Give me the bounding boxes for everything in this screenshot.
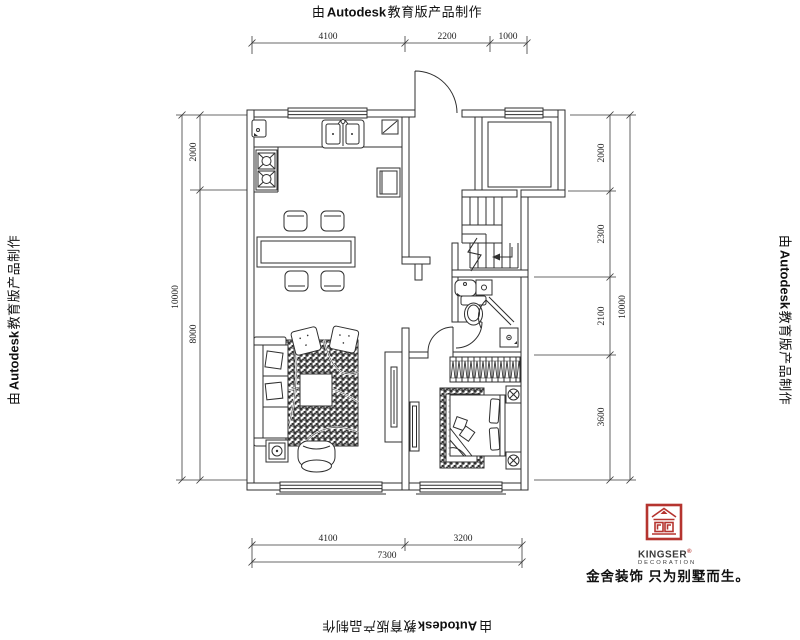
dining-chair [321, 271, 344, 291]
coffee-table [300, 374, 332, 406]
dim-top-1: 4100 [317, 32, 340, 42]
watermark-suffix: 教育版产品制作 [322, 618, 417, 633]
microwave [382, 120, 398, 134]
kitchen-window [288, 108, 367, 118]
kitchen [252, 120, 402, 198]
annex-window [505, 108, 543, 118]
dim-bottom-total: 7300 [376, 551, 399, 561]
entry-door [415, 71, 457, 113]
brand-name-text: KINGSER [638, 549, 687, 560]
gas-stove [256, 150, 277, 190]
dim-left-2: 8000 [189, 323, 199, 346]
dim-right-total: 10000 [618, 293, 628, 321]
stair-arrow [492, 254, 500, 261]
bedroom-cabinet [410, 402, 419, 451]
watermark-prefix: 由 [479, 618, 493, 633]
bedroom-window [416, 482, 506, 494]
watermark-suffix: 教育版产品制作 [388, 6, 483, 21]
dim-right-1: 2000 [597, 142, 607, 165]
floor-cushion [329, 326, 359, 354]
water-heater [252, 120, 266, 137]
dim-right-3: 2100 [597, 305, 607, 328]
stairs [462, 197, 518, 271]
kingser-logo-name: KINGSER® [638, 547, 690, 560]
dining-chair [284, 211, 307, 231]
kingser-logo-icon [645, 503, 683, 541]
bathroom-door [456, 322, 482, 348]
watermark-bottom: 由Autodesk教育版产品制作 [320, 618, 493, 637]
nightstand [506, 452, 521, 469]
watermark-prefix: 由 [312, 6, 326, 21]
dim-right-2: 2300 [597, 223, 607, 246]
dim-bottom-2: 3200 [452, 534, 475, 544]
watermark-suffix: 教育版产品制作 [8, 235, 23, 330]
bath-counter [476, 280, 492, 295]
bedroom [410, 357, 521, 469]
dim-left-total: 10000 [171, 283, 181, 311]
dim-top-2: 2200 [436, 32, 459, 42]
washing-machine [500, 328, 518, 347]
wardrobe [450, 357, 520, 382]
watermark-prefix: 由 [8, 392, 23, 406]
floorplan-canvas: 由Autodesk教育版产品制作 由Autodesk教育版产品制作 由Autod… [0, 0, 800, 640]
bedroom-door [428, 327, 453, 352]
watermark-brand: Autodesk [778, 250, 793, 309]
registered-mark: ® [687, 549, 692, 555]
dim-top-3: 1000 [497, 32, 520, 42]
living-room [254, 326, 402, 472]
dining-table [257, 237, 355, 267]
dim-right-4: 3600 [597, 406, 607, 429]
dining-chair [285, 271, 308, 291]
watermark-left: 由Autodesk教育版产品制作 [4, 233, 23, 406]
bathroom [455, 280, 518, 347]
sofa [254, 337, 288, 446]
nightstand [506, 386, 521, 403]
toilet [461, 296, 486, 325]
brand-tagline: 金舍装饰 只为别墅而生。 [586, 565, 750, 585]
living-window [276, 482, 386, 494]
dim-bottom-1: 4100 [317, 534, 340, 544]
tv-cabinet [385, 352, 402, 442]
fridge [377, 168, 400, 197]
armchair [298, 441, 335, 472]
watermark-top: 由Autodesk教育版产品制作 [310, 2, 483, 21]
watermark-suffix: 教育版产品制作 [777, 311, 792, 406]
watermark-brand: Autodesk [7, 331, 22, 390]
dining [257, 211, 355, 291]
dim-left-1: 2000 [189, 141, 199, 164]
kingser-brand: KINGSER® DECORATION [638, 503, 690, 567]
kitchen-sink [322, 120, 364, 149]
bed [450, 395, 505, 456]
watermark-prefix: 由 [777, 235, 792, 249]
watermark-brand: Autodesk [327, 5, 386, 20]
corner-sink [455, 280, 476, 296]
watermark-brand: Autodesk [418, 619, 477, 634]
annex-room [488, 122, 551, 187]
speaker [266, 440, 288, 462]
watermark-right: 由Autodesk教育版产品制作 [777, 233, 796, 406]
dining-chair [321, 211, 344, 231]
